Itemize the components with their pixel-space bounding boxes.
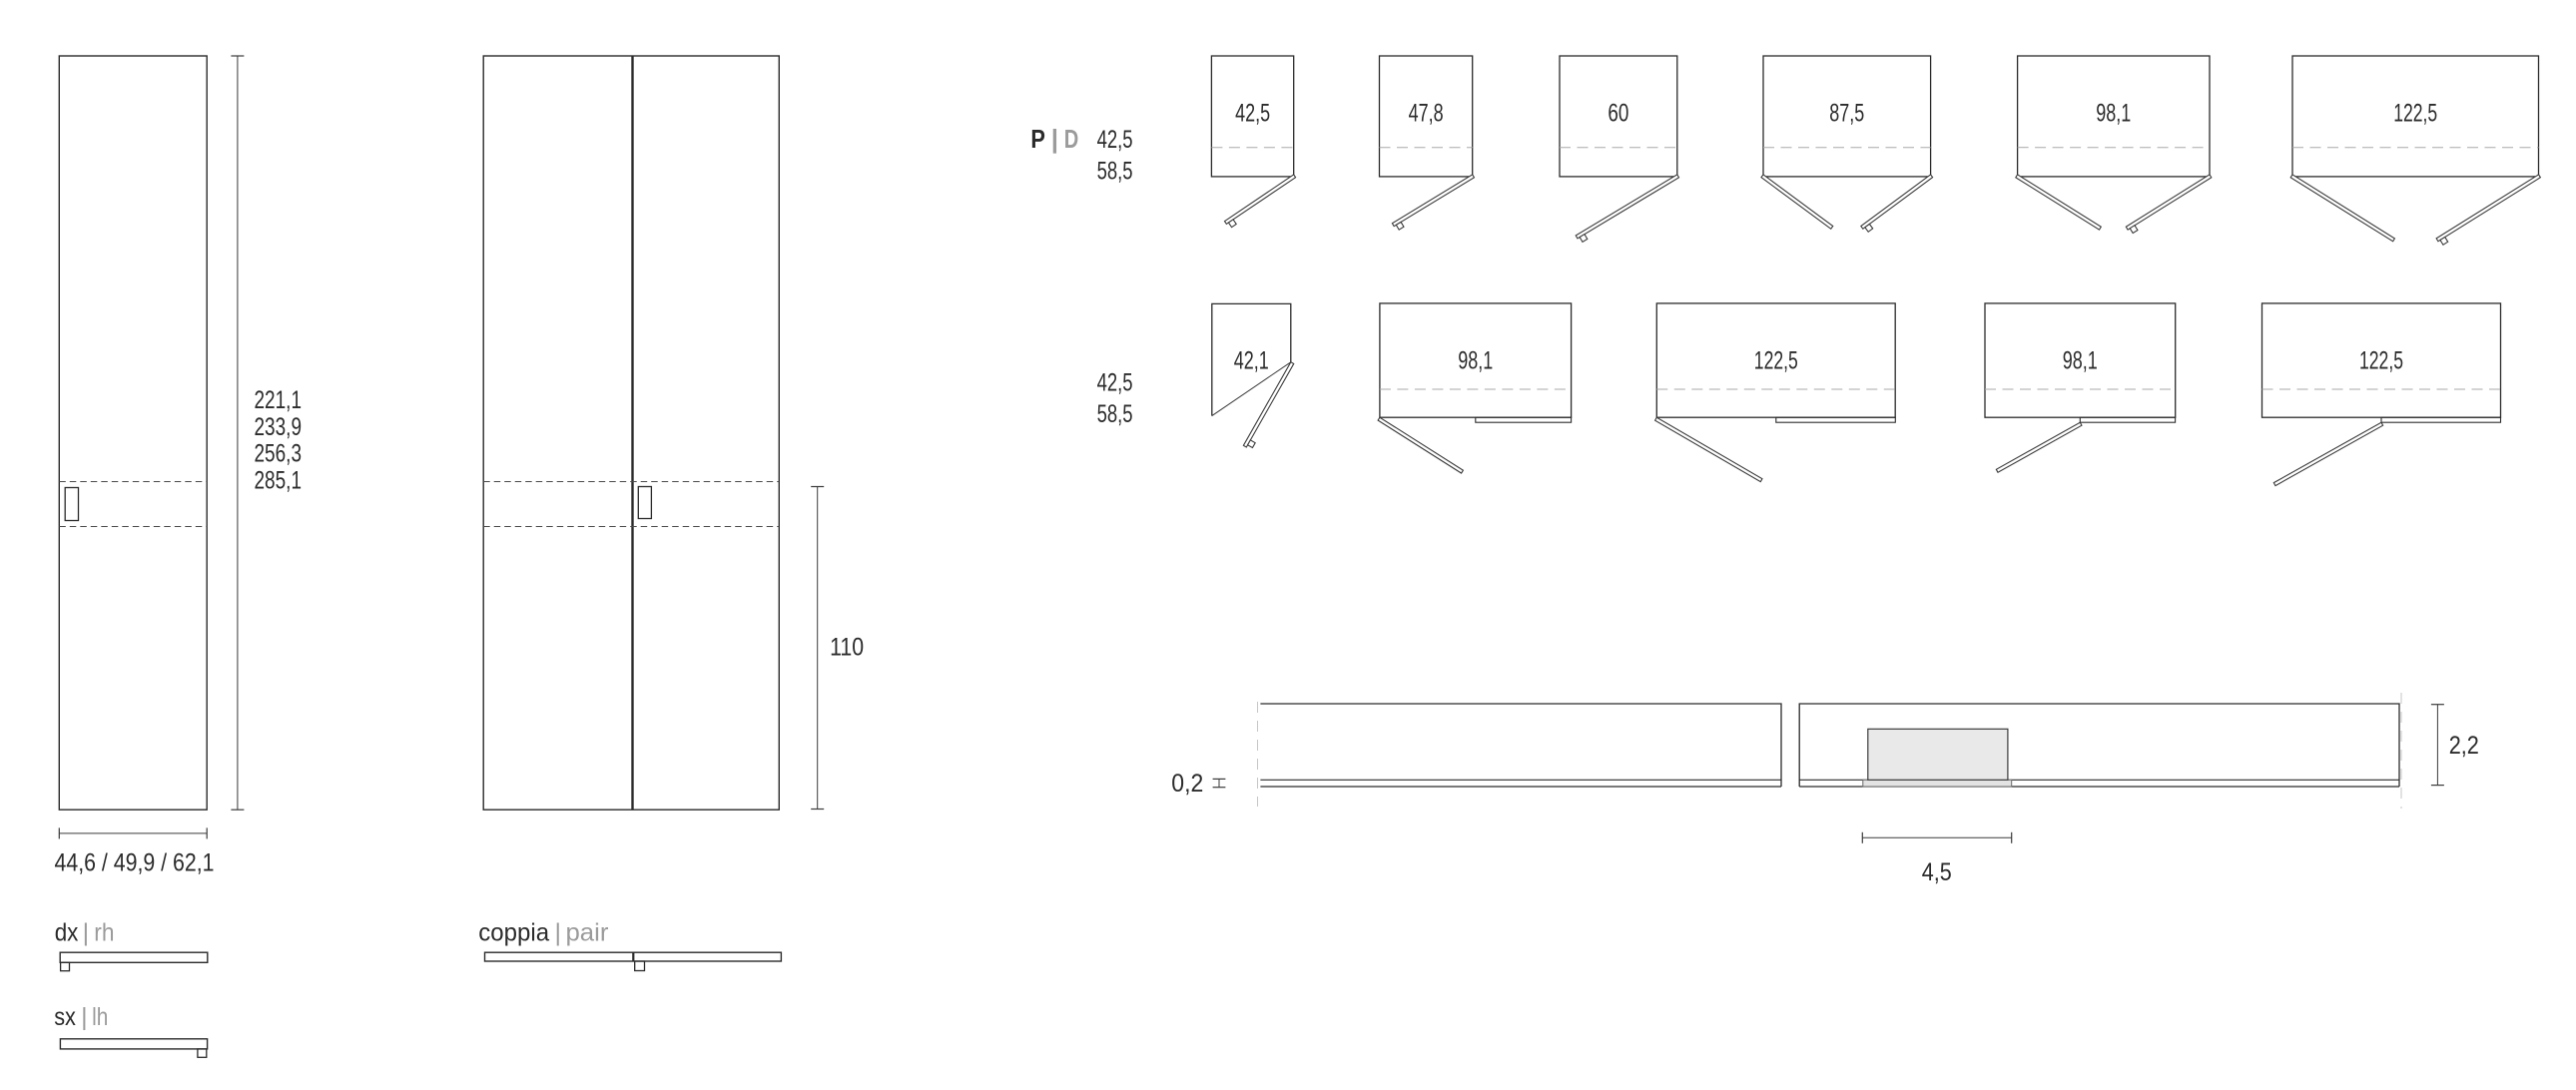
svg-text:256,3: 256,3 xyxy=(255,440,303,468)
svg-text:0,2: 0,2 xyxy=(1171,770,1203,798)
svg-text:42,1: 42,1 xyxy=(1234,346,1269,374)
svg-text:rh: rh xyxy=(94,919,114,947)
svg-text:98,1: 98,1 xyxy=(2096,100,2131,128)
svg-text:pair: pair xyxy=(566,919,609,947)
svg-text:47,8: 47,8 xyxy=(1409,100,1444,128)
svg-text:|: | xyxy=(555,919,562,947)
svg-text:42,5: 42,5 xyxy=(1097,126,1133,154)
svg-text:98,1: 98,1 xyxy=(2063,346,2098,374)
svg-text:42,5: 42,5 xyxy=(1097,369,1133,397)
svg-text:233,9: 233,9 xyxy=(255,413,303,441)
svg-text:coppia: coppia xyxy=(478,919,549,947)
svg-text:dx: dx xyxy=(55,919,79,947)
svg-text:42,5: 42,5 xyxy=(1235,100,1270,128)
svg-text:D: D xyxy=(1064,124,1079,154)
svg-text:sx: sx xyxy=(54,1003,76,1031)
svg-text:58,5: 58,5 xyxy=(1097,400,1133,428)
svg-text:122,5: 122,5 xyxy=(2359,346,2403,374)
svg-text:2,2: 2,2 xyxy=(2449,732,2479,760)
svg-text:4,5: 4,5 xyxy=(1922,858,1952,886)
svg-text:110: 110 xyxy=(830,633,864,661)
svg-text:44,6 / 49,9 / 62,1: 44,6 / 49,9 / 62,1 xyxy=(55,849,215,877)
svg-text:|: | xyxy=(83,919,90,947)
svg-text:87,5: 87,5 xyxy=(1829,100,1864,128)
svg-text:98,1: 98,1 xyxy=(1458,346,1493,374)
svg-text:221,1: 221,1 xyxy=(255,386,303,414)
svg-text:60: 60 xyxy=(1608,100,1628,128)
svg-text:58,5: 58,5 xyxy=(1097,157,1133,185)
svg-text:lh: lh xyxy=(92,1003,108,1031)
svg-text:285,1: 285,1 xyxy=(255,466,303,494)
svg-text:122,5: 122,5 xyxy=(2393,100,2437,128)
svg-text:|: | xyxy=(1051,124,1058,154)
svg-text:P: P xyxy=(1030,124,1045,154)
svg-text:|: | xyxy=(81,1003,88,1031)
svg-text:122,5: 122,5 xyxy=(1754,346,1798,374)
